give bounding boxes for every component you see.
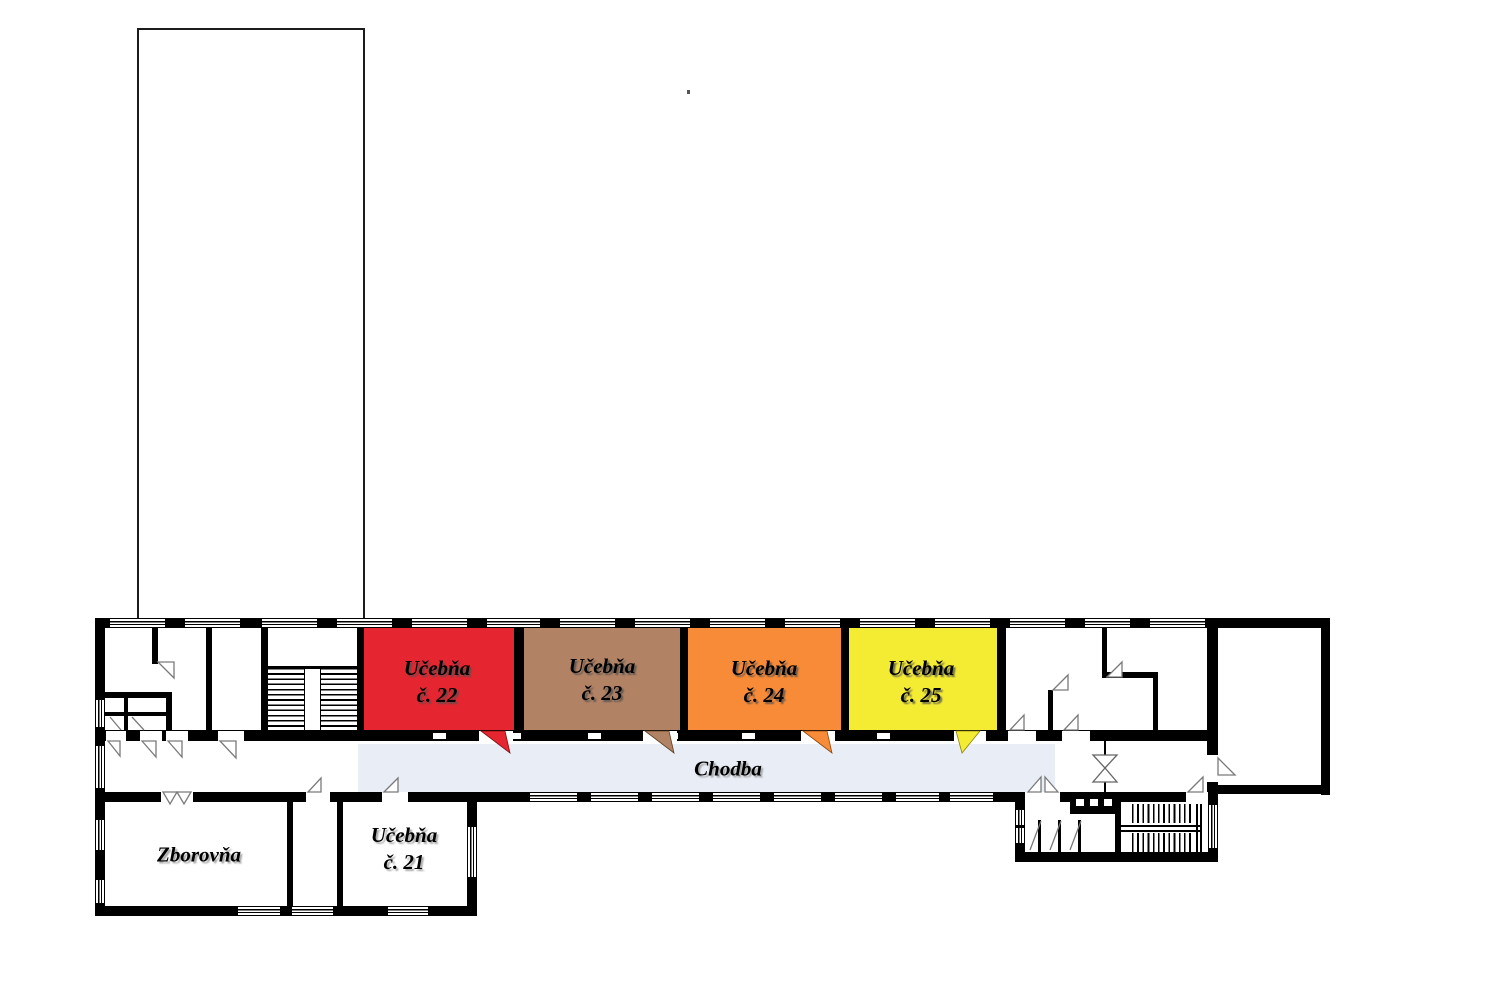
- wall-bigroom-right: [1321, 618, 1330, 795]
- label-line: č. 22: [404, 682, 471, 709]
- door-swing-icon: [220, 741, 236, 758]
- window: [96, 880, 104, 903]
- wall-east-partition-b: [1102, 628, 1107, 678]
- label-line: Učebňa: [371, 822, 438, 849]
- window: [337, 619, 392, 627]
- x-door-icon: [1093, 768, 1117, 782]
- wall-annexR-bottom: [1015, 852, 1218, 862]
- window: [652, 793, 699, 801]
- window: [530, 793, 577, 801]
- stair-annex-rail-line: [1118, 825, 1200, 827]
- x-door-icon: [1093, 755, 1117, 768]
- wall-partition-2: [206, 628, 212, 740]
- label-ucebna-23: Učebňa č. 23: [569, 653, 636, 707]
- label-ucebna-25: Učebňa č. 25: [888, 655, 955, 709]
- door-swing-icon: [308, 778, 321, 792]
- door-opening: [161, 792, 193, 802]
- window: [388, 907, 428, 915]
- window: [774, 793, 821, 801]
- stair-annex-side-rail: [1196, 804, 1198, 852]
- wall-r22-r23: [514, 628, 524, 731]
- label-line: Chodba: [694, 756, 762, 783]
- window: [468, 827, 476, 877]
- window: [96, 746, 104, 788]
- window: [896, 793, 939, 801]
- window: [635, 619, 690, 627]
- wall-notch: [742, 733, 755, 739]
- label-ucebna-22: Učebňa č. 22: [404, 655, 471, 709]
- stair-annex-side-rail: [1200, 804, 1202, 852]
- stair-flight-right: [321, 668, 357, 733]
- wall-notch: [877, 733, 890, 739]
- wall-partition-1: [152, 628, 158, 664]
- window: [785, 619, 840, 627]
- door-opening: [382, 792, 408, 802]
- window: [185, 619, 240, 627]
- door-opening: [954, 731, 986, 741]
- door-opening: [1062, 731, 1090, 741]
- door-swing-icon: [1188, 777, 1203, 792]
- label-line: č. 21: [371, 849, 438, 876]
- wall-east-partition-c: [1153, 672, 1158, 740]
- stair-top-line: [268, 666, 357, 668]
- window: [292, 907, 333, 915]
- wc-block-square: [1104, 799, 1112, 806]
- door-opening: [166, 731, 188, 741]
- window: [1085, 619, 1130, 627]
- door-opening: [1008, 731, 1036, 741]
- window: [96, 700, 104, 727]
- label-chodba: Chodba: [694, 756, 762, 783]
- door-opening: [140, 731, 162, 741]
- wall-wc-mid-h: [104, 712, 172, 716]
- door-opening: [106, 731, 126, 741]
- stair-annex-lower-flight: [1132, 833, 1194, 852]
- wall-east-jog: [1102, 672, 1158, 678]
- label-line: č. 23: [569, 680, 636, 707]
- window: [1016, 810, 1024, 825]
- stair-flight-left: [268, 668, 304, 733]
- stair-annex-upper-flight: [1132, 804, 1194, 823]
- window: [835, 793, 882, 801]
- window: [1150, 619, 1205, 627]
- label-ucebna-24: Učebňa č. 24: [731, 655, 798, 709]
- wall-notch: [665, 733, 678, 739]
- wall-stair-annex-left: [1115, 792, 1121, 852]
- door-swing-icon: [1064, 715, 1078, 730]
- window: [935, 619, 990, 627]
- label-line: Učebňa: [731, 655, 798, 682]
- door-opening: [1186, 792, 1208, 802]
- door-swing-icon: [108, 741, 120, 756]
- label-line: Učebňa: [404, 655, 471, 682]
- window: [560, 619, 615, 627]
- wall-stall-1: [1038, 820, 1041, 852]
- label-line: č. 25: [888, 682, 955, 709]
- door-swing-icon: [1218, 758, 1235, 775]
- door-opening: [1207, 755, 1218, 782]
- wall-stall-3: [1078, 820, 1081, 852]
- wall-bigroom-bottom: [1213, 785, 1330, 794]
- wall-stall-2: [1058, 820, 1061, 852]
- wall-notch: [508, 733, 521, 739]
- wall-notch: [588, 733, 601, 739]
- wc-block-square: [1090, 799, 1098, 806]
- door-swing-icon: [1010, 715, 1024, 730]
- window: [710, 619, 765, 627]
- door-swing-icon: [1053, 675, 1068, 690]
- wall-notch: [433, 733, 446, 739]
- floor-plan-canvas: Učebňa č. 22 Učebňa č. 23 Učebňa č. 24 U…: [0, 0, 1500, 994]
- wall-stair-left: [261, 628, 268, 740]
- window: [110, 619, 165, 627]
- window: [591, 793, 638, 801]
- door-opening: [218, 731, 244, 741]
- window: [1209, 805, 1217, 848]
- label-line: Učebňa: [569, 653, 636, 680]
- wall-room1-bottom: [104, 692, 172, 698]
- wall-vestibule-right: [337, 800, 343, 912]
- label-ucebna-21: Učebňa č. 21: [371, 822, 438, 876]
- wall-r24-r25: [841, 628, 849, 731]
- stair-annex-rail-line: [1118, 830, 1200, 832]
- x-door-stem-bottom: [1104, 781, 1106, 793]
- door-swing-icon: [158, 662, 174, 678]
- stray-dot: [687, 90, 690, 94]
- door-opening: [801, 731, 835, 741]
- label-zborovna: Zborovňa: [157, 842, 241, 869]
- window: [487, 619, 540, 627]
- wc-block-square: [1076, 799, 1084, 806]
- window: [950, 793, 993, 801]
- window: [96, 820, 104, 850]
- wall-r25-east: [997, 628, 1006, 731]
- label-line: č. 24: [731, 682, 798, 709]
- label-line: Zborovňa: [157, 842, 241, 869]
- label-line: Učebňa: [888, 655, 955, 682]
- window: [1010, 619, 1065, 627]
- window: [860, 619, 915, 627]
- upper-annex-outline: [137, 28, 365, 626]
- window: [262, 619, 317, 627]
- wall-stair-right: [357, 628, 364, 731]
- window: [238, 907, 280, 915]
- wall-east-partition-a: [1048, 690, 1053, 740]
- wall-r23-r24: [680, 628, 688, 731]
- window: [1016, 828, 1024, 843]
- door-swing-icon: [142, 741, 156, 757]
- window: [713, 793, 760, 801]
- door-swing-icon: [168, 741, 182, 757]
- door-opening: [1025, 792, 1060, 802]
- x-door-stem-top: [1104, 740, 1106, 755]
- wall-vestibule-left: [287, 800, 293, 912]
- door-opening: [306, 792, 330, 802]
- window: [412, 619, 467, 627]
- stair-newel: [304, 668, 321, 733]
